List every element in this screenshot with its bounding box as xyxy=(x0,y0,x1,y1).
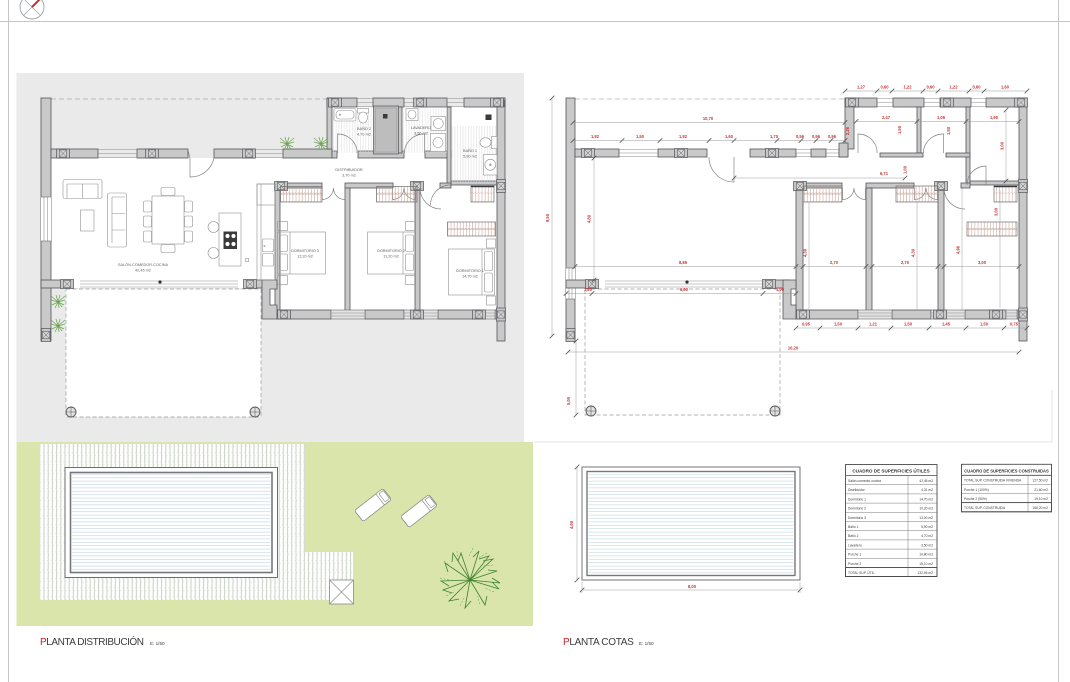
svg-text:Salón-comedor-cocina: Salón-comedor-cocina xyxy=(848,479,881,483)
svg-text:4,30: 4,30 xyxy=(803,248,808,257)
svg-text:Baño 2: Baño 2 xyxy=(848,534,859,538)
svg-text:12,20 m2: 12,20 m2 xyxy=(297,255,313,259)
svg-text:0,56: 0,56 xyxy=(796,134,805,139)
svg-text:3,00: 3,00 xyxy=(994,207,999,216)
svg-text:1,80: 1,80 xyxy=(584,287,593,292)
svg-text:0,95: 0,95 xyxy=(802,322,811,327)
svg-text:1,27: 1,27 xyxy=(857,85,866,90)
svg-text:9,50: 9,50 xyxy=(545,213,550,222)
svg-text:0,96: 0,96 xyxy=(812,134,821,139)
svg-text:1,60: 1,60 xyxy=(725,134,734,139)
svg-text:0,60: 0,60 xyxy=(927,85,936,90)
svg-text:5,00: 5,00 xyxy=(566,396,571,405)
svg-text:2,47: 2,47 xyxy=(882,115,891,120)
svg-text:1,50: 1,50 xyxy=(904,322,913,327)
svg-text:Porche 2: Porche 2 xyxy=(848,562,861,566)
svg-text:127,50 m2: 127,50 m2 xyxy=(1032,479,1048,483)
svg-text:Dormitorio 3: Dormitorio 3 xyxy=(848,516,866,520)
svg-text:2,26: 2,26 xyxy=(845,126,850,135)
svg-text:1,50: 1,50 xyxy=(834,322,843,327)
svg-text:5,90 m2: 5,90 m2 xyxy=(463,155,477,159)
svg-text:14,70 m2: 14,70 m2 xyxy=(919,497,933,501)
svg-text:1,22: 1,22 xyxy=(904,85,913,90)
svg-text:3,00: 3,00 xyxy=(1000,141,1005,150)
svg-text:8,85: 8,85 xyxy=(679,260,688,265)
svg-text:Dormitorio 1: Dormitorio 1 xyxy=(848,497,866,501)
svg-text:1,60: 1,60 xyxy=(1001,85,1010,90)
svg-text:2,70: 2,70 xyxy=(901,260,910,265)
svg-text:1,00: 1,00 xyxy=(776,287,785,292)
svg-text:0,96: 0,96 xyxy=(828,134,837,139)
svg-text:6,60: 6,60 xyxy=(680,287,689,292)
svg-text:0,75: 0,75 xyxy=(1010,322,1019,327)
svg-text:1,90: 1,90 xyxy=(990,115,999,120)
svg-text:1,50: 1,50 xyxy=(897,125,902,134)
svg-text:4,70 m2: 4,70 m2 xyxy=(357,133,371,137)
svg-text:PLANTA DISTRIBUCIÓN: PLANTA DISTRIBUCIÓN xyxy=(40,635,144,648)
svg-text:4,70 m2: 4,70 m2 xyxy=(921,534,933,538)
svg-text:10,20: 10,20 xyxy=(788,346,799,351)
svg-text:DORMITORIO 1: DORMITORIO 1 xyxy=(456,269,484,273)
svg-text:0,60: 0,60 xyxy=(973,85,982,90)
svg-text:CUADRO DE SUPERFICIES CONSTRUI: CUADRO DE SUPERFICIES CONSTRUIDAS xyxy=(964,468,1049,473)
svg-text:DORMITORIO 3: DORMITORIO 3 xyxy=(291,249,319,253)
svg-text:Distribuidor: Distribuidor xyxy=(848,488,866,492)
svg-text:1,45: 1,45 xyxy=(942,322,951,327)
svg-text:10,20 m2: 10,20 m2 xyxy=(919,507,933,511)
svg-text:0,60: 0,60 xyxy=(881,85,890,90)
svg-text:DORMITORIO 2: DORMITORIO 2 xyxy=(377,249,405,253)
svg-text:8,00: 8,00 xyxy=(688,584,697,589)
svg-text:4,96: 4,96 xyxy=(956,245,961,254)
svg-text:1,05: 1,05 xyxy=(937,115,946,120)
svg-text:4,80: 4,80 xyxy=(587,214,592,223)
svg-text:1,50: 1,50 xyxy=(946,126,951,135)
svg-text:14,70 m2: 14,70 m2 xyxy=(462,275,478,279)
svg-text:TOTAL SUP. CONSTRUIDA: TOTAL SUP. CONSTRUIDA xyxy=(964,506,1006,510)
svg-text:10,80 m2: 10,80 m2 xyxy=(919,553,933,557)
svg-text:BAÑO 2: BAÑO 2 xyxy=(357,126,371,131)
svg-text:4,31 m2: 4,31 m2 xyxy=(921,488,933,492)
svg-text:BAÑO 1: BAÑO 1 xyxy=(463,148,477,153)
svg-text:E: 1/50: E: 1/50 xyxy=(150,641,165,646)
svg-text:1,22: 1,22 xyxy=(950,85,959,90)
svg-text:Porche 1 (100%): Porche 1 (100%) xyxy=(964,488,989,492)
svg-text:Porche 2 (50%): Porche 2 (50%) xyxy=(964,497,987,501)
svg-text:DISTRIBUIDOR: DISTRIBUIDOR xyxy=(335,168,362,172)
svg-text:3,00: 3,00 xyxy=(978,260,987,265)
svg-text:3,70 m2: 3,70 m2 xyxy=(342,174,356,178)
svg-text:21,60 m2: 21,60 m2 xyxy=(1034,488,1048,492)
svg-text:132,05 m2: 132,05 m2 xyxy=(917,571,933,575)
svg-text:3,56 m2: 3,56 m2 xyxy=(414,132,428,136)
svg-text:PLANTA COTAS: PLANTA COTAS xyxy=(563,637,634,648)
svg-text:11,20 m2: 11,20 m2 xyxy=(383,255,399,259)
svg-text:1,21: 1,21 xyxy=(869,322,878,327)
svg-text:Dormitorio 2: Dormitorio 2 xyxy=(848,507,866,511)
svg-text:2,70: 2,70 xyxy=(830,260,839,265)
svg-text:1,92: 1,92 xyxy=(591,134,600,139)
svg-text:1,00: 1,00 xyxy=(903,165,908,174)
svg-text:1,50: 1,50 xyxy=(636,134,645,139)
svg-text:1,70: 1,70 xyxy=(770,134,779,139)
svg-text:E: 1/50: E: 1/50 xyxy=(639,641,654,646)
svg-text:5,90 m2: 5,90 m2 xyxy=(921,525,933,529)
svg-text:15,10 m2: 15,10 m2 xyxy=(919,562,933,566)
svg-text:Lavadero: Lavadero xyxy=(848,543,862,547)
svg-text:42,45 m2: 42,45 m2 xyxy=(135,269,151,273)
svg-text:19,10 m2: 19,10 m2 xyxy=(1034,497,1048,501)
svg-text:SALÓN-COMEDOR-COCINA: SALÓN-COMEDOR-COCINA xyxy=(118,262,168,267)
svg-text:1,92: 1,92 xyxy=(679,134,688,139)
svg-text:6,71: 6,71 xyxy=(880,171,889,176)
svg-text:TOTAL SUP. ÚTIL: TOTAL SUP. ÚTIL xyxy=(848,571,875,575)
svg-text:4,00: 4,00 xyxy=(569,520,574,529)
svg-text:168,20 m2: 168,20 m2 xyxy=(1032,506,1048,510)
svg-text:Baño 1: Baño 1 xyxy=(848,525,859,529)
svg-text:3,50 m2: 3,50 m2 xyxy=(921,543,933,547)
svg-text:42,45 m2: 42,45 m2 xyxy=(919,479,933,483)
svg-text:Porche 1: Porche 1 xyxy=(848,553,861,557)
svg-text:CUADRO DE SUPERFICIES ÚTILES: CUADRO DE SUPERFICIES ÚTILES xyxy=(852,468,929,474)
svg-text:13,00 m2: 13,00 m2 xyxy=(919,516,933,520)
svg-text:LAVADERO: LAVADERO xyxy=(411,126,431,130)
svg-text:TOTAL SUP. CONSTRUIDA VIVIENDA: TOTAL SUP. CONSTRUIDA VIVIENDA xyxy=(964,479,1022,483)
svg-text:1,50: 1,50 xyxy=(980,322,989,327)
svg-text:4,30: 4,30 xyxy=(911,248,916,257)
svg-text:10,70: 10,70 xyxy=(703,116,714,121)
